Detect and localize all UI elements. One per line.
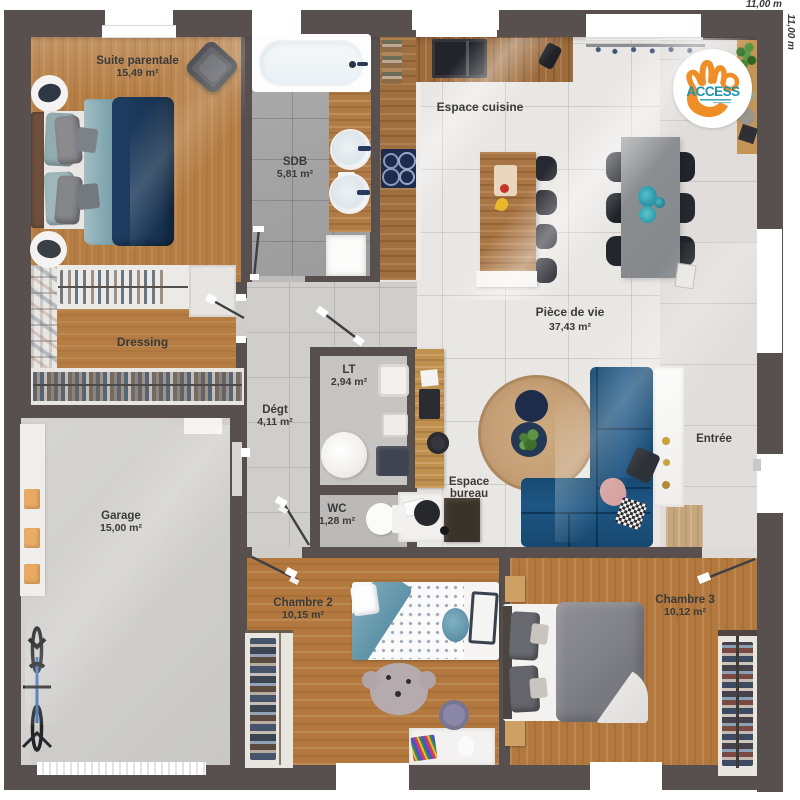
svg-text:ACCESS: ACCESS: [686, 84, 740, 99]
